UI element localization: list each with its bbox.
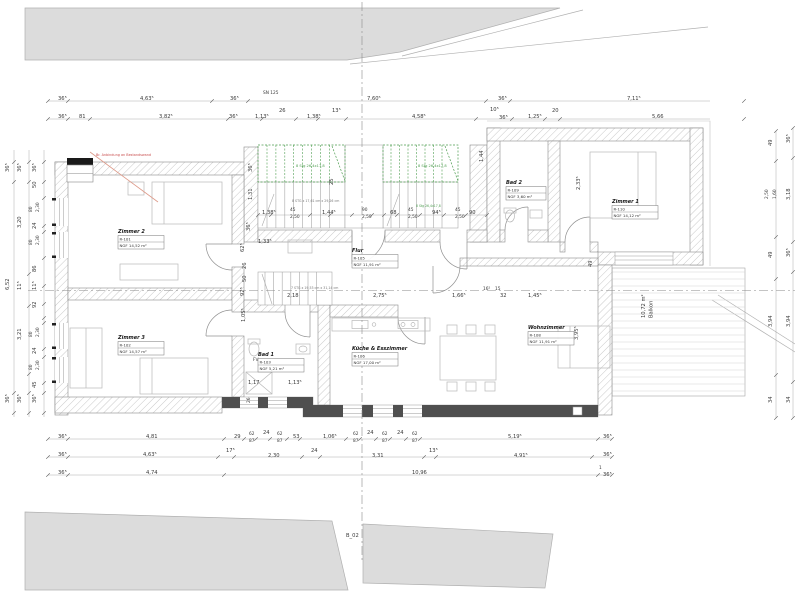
dark-wall-segments bbox=[222, 397, 598, 417]
dim-label: 68 bbox=[390, 210, 397, 216]
dim-label: 1,66⁵ bbox=[452, 293, 466, 299]
dim-label: 11⁵ bbox=[17, 281, 23, 290]
dim-label: 36⁵ bbox=[5, 163, 11, 172]
room-name: Zimmer 1 bbox=[611, 199, 639, 205]
dim-label: 1,44⁵ bbox=[322, 210, 336, 216]
room-name: Zimmer 2 bbox=[117, 229, 145, 235]
dim-label: 10,96 bbox=[412, 470, 427, 476]
dim-label: 2,30 bbox=[35, 327, 41, 337]
dim-label: 1 bbox=[599, 465, 602, 471]
labels-layer: 10,72 m² Balkon B_02 36⁵4,63⁵36⁵7,60⁵36⁵… bbox=[5, 90, 792, 539]
dim-label: 36⁵ bbox=[229, 114, 238, 120]
dim-label: 62 bbox=[353, 431, 359, 437]
dim-label: 11⁵ bbox=[32, 281, 38, 290]
room-area: NGF 17,00 m² bbox=[354, 360, 382, 365]
west-window bbox=[52, 357, 68, 383]
room-area: NGF 11,91 m² bbox=[354, 262, 382, 267]
dim-label: 3,20 bbox=[17, 216, 23, 228]
room-number: R-108 bbox=[530, 333, 542, 338]
dim-label: 36⁵ bbox=[58, 434, 67, 440]
dim-label: 24 bbox=[263, 430, 270, 436]
room-number: R-109 bbox=[508, 188, 520, 193]
dim-label: 24 bbox=[311, 448, 318, 454]
dim-label: 81 bbox=[79, 114, 86, 120]
dim-label: 2,50 bbox=[455, 214, 465, 220]
dim-label: 80 bbox=[28, 239, 34, 245]
stair-text: 7 STG x 19,53 cm x 31,14 cm bbox=[291, 286, 338, 290]
dim-label: 2,30 bbox=[35, 360, 41, 370]
floor-plan: Br. Anbindung an Bestandswand 10,72 m² B… bbox=[0, 0, 795, 600]
west-window bbox=[52, 198, 68, 226]
room-area: NGF 11,91 m² bbox=[530, 339, 558, 344]
chimney bbox=[67, 158, 93, 182]
dim-label: 34 bbox=[768, 396, 774, 403]
dim-label: 1,33⁵ bbox=[258, 239, 272, 245]
room-number: R-102 bbox=[120, 343, 132, 348]
room-name: Zimmer 3 bbox=[117, 335, 145, 341]
dim-label: 24 bbox=[32, 222, 38, 229]
balcony-label: Balkon bbox=[649, 301, 655, 318]
dim-label: 32 bbox=[500, 293, 507, 299]
dim-label: 10⁵ bbox=[490, 107, 499, 113]
dim-label: 24 bbox=[32, 347, 38, 354]
dim-label: 1,13⁵ bbox=[288, 380, 302, 386]
dim-label: 1,38⁵ bbox=[262, 210, 276, 216]
dim-label: 80 bbox=[28, 331, 34, 337]
room-area: NGF 14,52 m² bbox=[120, 243, 148, 248]
red-annotation: Br. Anbindung an Bestandswand bbox=[90, 152, 158, 202]
dim-label: 87 bbox=[412, 438, 418, 444]
dim-label: 3,82⁵ bbox=[159, 114, 173, 120]
dim-label: 1,25⁵ bbox=[528, 114, 542, 120]
dim-label: 62⁵ bbox=[240, 243, 246, 252]
dim-label: 62 bbox=[412, 431, 418, 437]
dim-label: 3,18 bbox=[786, 188, 792, 200]
dim-label: 62 bbox=[382, 431, 388, 437]
zimmer1-window bbox=[615, 252, 673, 265]
dim-label: 86 bbox=[32, 265, 38, 272]
dim-label: 87 bbox=[249, 438, 255, 444]
dim-label: 5,19⁵ bbox=[508, 434, 522, 440]
dim-label: 26 bbox=[242, 262, 248, 269]
room-number: R-103 bbox=[260, 360, 272, 365]
stair-text: 8 Stg 26,4x17,8 bbox=[418, 164, 447, 168]
room-name: Küche & Esszimmer bbox=[352, 346, 408, 352]
dim-label: 36⁵ bbox=[230, 96, 239, 102]
dim-label: 49 bbox=[768, 139, 774, 146]
room-area: NGF 3,60 m² bbox=[508, 194, 533, 199]
dim-label: 1,44 bbox=[479, 150, 485, 162]
dim-label: 36⁵ bbox=[603, 434, 612, 440]
west-window bbox=[52, 232, 68, 258]
dim-label: 3,21 bbox=[17, 328, 23, 340]
room-name: Bad 1 bbox=[258, 352, 274, 358]
dim-label: 26 bbox=[246, 397, 252, 403]
dim-label: 80 bbox=[28, 364, 34, 370]
dim-label: 36⁵ bbox=[58, 96, 67, 102]
dim-label: 1,17 bbox=[248, 380, 260, 386]
dim-label: 4,91⁵ bbox=[514, 453, 528, 459]
dim-label: 36⁵ bbox=[17, 394, 23, 403]
dim-label: 2,50 bbox=[290, 214, 300, 220]
dim-label: 7,60⁵ bbox=[367, 96, 381, 102]
dim-label: 13⁵ bbox=[429, 448, 438, 454]
dim-label: 87 bbox=[277, 438, 283, 444]
dim-label: 50 bbox=[32, 181, 38, 188]
dim-label: 36⁵ bbox=[499, 115, 508, 121]
dim-label: 36⁵ bbox=[32, 163, 38, 172]
balcony-area-label: 10,72 m² bbox=[641, 294, 647, 318]
dim-label: 1,38⁵ bbox=[307, 114, 321, 120]
dim-label: 36⁵ bbox=[248, 163, 254, 172]
stair-text: 8 Stg 26,4x17,8 bbox=[296, 164, 325, 168]
dim-label: 7,11⁵ bbox=[627, 96, 641, 102]
dim-label: 92 bbox=[32, 301, 38, 308]
dim-label: 45 bbox=[32, 381, 38, 388]
dim-label: 5,66 bbox=[652, 114, 664, 120]
dim-label: 16⁵ bbox=[483, 286, 490, 292]
dim-label: 2,75⁵ bbox=[373, 293, 387, 299]
dim-label: 25 bbox=[329, 178, 335, 185]
dim-label: 36⁵ bbox=[786, 134, 792, 143]
room-name: Flur bbox=[352, 248, 364, 254]
dim-label: 2,50 bbox=[362, 214, 372, 220]
dim-label: 24 bbox=[397, 430, 404, 436]
dim-label: 50 bbox=[242, 275, 248, 282]
room-number: R-110 bbox=[614, 207, 626, 212]
dim-label: 87 bbox=[353, 438, 359, 444]
dim-label: 34 bbox=[786, 396, 792, 403]
dim-label: 53 bbox=[293, 434, 300, 440]
dim-label: 80 bbox=[28, 206, 34, 212]
dim-label: 45 bbox=[408, 207, 414, 213]
dim-label: 2,30 bbox=[35, 235, 41, 245]
dim-label: 29 bbox=[234, 434, 241, 440]
dim-label: 62 bbox=[277, 431, 283, 437]
dim-label: 94⁵ bbox=[432, 210, 441, 216]
section-label: B_02 bbox=[346, 533, 359, 539]
dim-label: 36⁵ bbox=[246, 222, 252, 231]
room-number: R-101 bbox=[120, 237, 132, 242]
dim-label: SN 125 bbox=[263, 90, 279, 96]
dim-label: 1,06⁵ bbox=[323, 434, 337, 440]
dim-label: 24 bbox=[367, 430, 374, 436]
room-name: Wohnzimmer bbox=[528, 325, 565, 331]
dim-label: 45 bbox=[455, 207, 461, 213]
dim-label: 4,63⁵ bbox=[143, 452, 157, 458]
red-note: Br. Anbindung an Bestandswand bbox=[96, 153, 151, 157]
dim-label: 13⁵ bbox=[332, 108, 341, 114]
dim-label: 87 bbox=[382, 438, 388, 444]
dim-label: 4,74 bbox=[146, 470, 158, 476]
dim-label: 2,50 bbox=[408, 214, 418, 220]
dim-label: 36⁵ bbox=[32, 394, 38, 403]
room-number: R-106 bbox=[354, 354, 366, 359]
room-area: NGF 14,57 m² bbox=[120, 349, 148, 354]
dim-label: 20 bbox=[552, 108, 559, 114]
dim-label: 1,45⁵ bbox=[528, 293, 542, 299]
stairs bbox=[258, 145, 458, 305]
dim-label: 62 bbox=[249, 431, 255, 437]
dim-label: 36⁵ bbox=[58, 452, 67, 458]
balcony bbox=[612, 268, 745, 396]
dim-label: 2,30 bbox=[35, 202, 41, 212]
dim-label: 36⁵ bbox=[498, 96, 507, 102]
room-area: NGF 14,12 m² bbox=[614, 213, 642, 218]
dim-label: 6,52 bbox=[5, 278, 11, 290]
dim-label: 2,50 bbox=[764, 189, 770, 199]
dim-label: 1,31 bbox=[248, 188, 254, 200]
dim-label: 45 bbox=[290, 207, 296, 213]
stair-text: 8 STG x 17,61 cm x 29,26 cm bbox=[292, 199, 339, 203]
dim-label: 1,60 bbox=[772, 189, 778, 199]
dim-label: 1,13⁵ bbox=[255, 114, 269, 120]
west-window bbox=[52, 323, 68, 349]
red-leader-line bbox=[90, 152, 158, 202]
dim-label: 1,05⁵ bbox=[241, 308, 247, 322]
dim-label: 4,81 bbox=[146, 434, 158, 440]
dim-label: 36⁵ bbox=[603, 452, 612, 458]
room-area: NGF 5,21 m² bbox=[260, 366, 285, 371]
dim-label: 36⁵ bbox=[786, 248, 792, 257]
dim-label: 36⁵ bbox=[58, 114, 67, 120]
section-lines bbox=[28, 2, 795, 562]
dim-label: 3,95⁵ bbox=[574, 326, 580, 340]
dim-label: 49 bbox=[588, 260, 594, 267]
dim-label: 90 bbox=[362, 207, 368, 213]
room-number: R-105 bbox=[354, 256, 366, 261]
dim-label: 2,18 bbox=[287, 293, 299, 299]
dim-label: 36⁵ bbox=[17, 163, 23, 172]
dim-label: 36⁵ bbox=[58, 470, 67, 476]
dim-label: 26 bbox=[279, 108, 286, 114]
dim-label: 4,63⁵ bbox=[140, 96, 154, 102]
dim-label: 49 bbox=[768, 251, 774, 258]
dim-label: 2,30 bbox=[268, 453, 280, 459]
dim-label: 36⁵ bbox=[603, 472, 612, 478]
floor-plan-page: Br. Anbindung an Bestandswand 10,72 m² B… bbox=[0, 0, 795, 600]
dim-label: 15 bbox=[495, 286, 501, 292]
dim-label: 17⁵ bbox=[226, 448, 235, 454]
dim-label: 4,58⁵ bbox=[412, 114, 426, 120]
dim-label: 3,31 bbox=[372, 453, 384, 459]
dim-label: 90 bbox=[469, 210, 476, 216]
dim-label: 92⁵ bbox=[240, 287, 246, 296]
room-name: Bad 2 bbox=[506, 180, 523, 186]
dim-label: 36⁵ bbox=[5, 394, 11, 403]
dim-label: 3,94 bbox=[786, 315, 792, 327]
dim-label: 2,33⁵ bbox=[576, 176, 582, 190]
stair-text: 8 Stg 26,4x17,8 bbox=[416, 204, 441, 208]
dim-label: 3,94 bbox=[768, 315, 774, 327]
